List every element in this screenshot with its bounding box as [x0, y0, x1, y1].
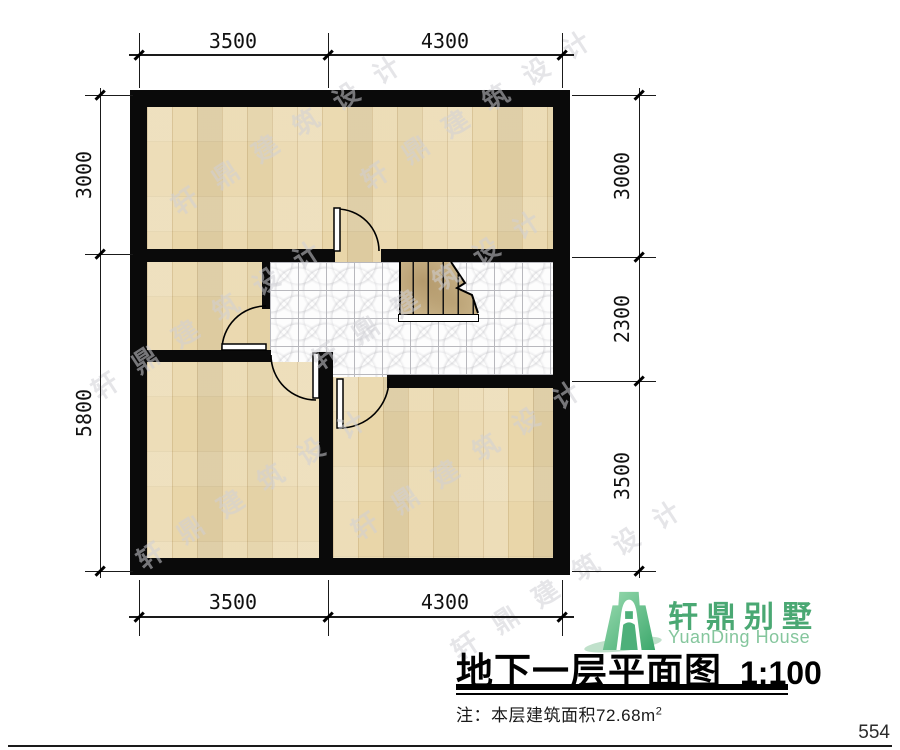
dim-label-bottom-3500: 3500: [209, 590, 257, 614]
dim-line: [639, 88, 641, 578]
dim-label-right-2300: 2300: [610, 295, 634, 343]
note-sup: 2: [656, 705, 663, 717]
note-unit: m: [641, 706, 656, 725]
dim-label-top-3500: 3500: [209, 29, 257, 53]
area-note: 注：本层建筑面积72.68m2: [456, 701, 662, 726]
dim-label-right-3500: 3500: [610, 452, 634, 500]
dim-ext-line: [85, 254, 133, 255]
dim-ext-line: [328, 580, 329, 636]
floor-plan-sheet: 轩鼎建筑设计 轩鼎建筑设计 轩鼎建筑设计 轩鼎建筑设计 轩鼎建筑设计 轩鼎建筑设…: [0, 0, 900, 750]
dim-ext-line: [139, 33, 140, 88]
dim-line: [129, 54, 574, 56]
door-leaf-bottom-left-room: [313, 353, 319, 398]
stair-break-line: [451, 262, 478, 313]
dim-line: [129, 616, 574, 618]
dim-ext-line: [139, 580, 140, 636]
dim-ext-line: [572, 257, 656, 258]
dim-label-bottom-4300: 4300: [421, 590, 469, 614]
page-number: 554: [820, 722, 890, 744]
dim-label-left-3000: 3000: [72, 151, 96, 199]
dim-label-top-4300: 4300: [421, 29, 469, 53]
footer-rule: [8, 745, 892, 747]
title-underline-thin: [456, 693, 788, 695]
title-underline-thick: [456, 684, 788, 690]
door-leaf-bottom-right-room: [337, 379, 343, 428]
dim-label-left-5800: 5800: [72, 389, 96, 437]
door-arc-top-room: [337, 209, 379, 251]
dim-ext-line: [572, 95, 656, 96]
dim-ext-line: [572, 571, 656, 572]
door-arc-bottom-left-room: [271, 355, 316, 400]
dim-ext-line: [562, 33, 563, 88]
note-area-value: 72.68: [596, 706, 641, 725]
note-prefix: 注：本层建筑面积: [456, 706, 596, 725]
door-leaf-top-room: [334, 208, 340, 251]
dim-ext-line: [85, 95, 133, 96]
dim-ext-line: [572, 381, 656, 382]
dim-ext-line: [562, 580, 563, 636]
dim-label-right-3000: 3000: [610, 152, 634, 200]
door-leaf-middle-left-room: [222, 344, 266, 350]
dim-line: [100, 88, 102, 578]
door-arc-bottom-right-room: [340, 379, 389, 428]
dim-ext-line: [85, 571, 133, 572]
dim-ext-line: [328, 33, 329, 88]
